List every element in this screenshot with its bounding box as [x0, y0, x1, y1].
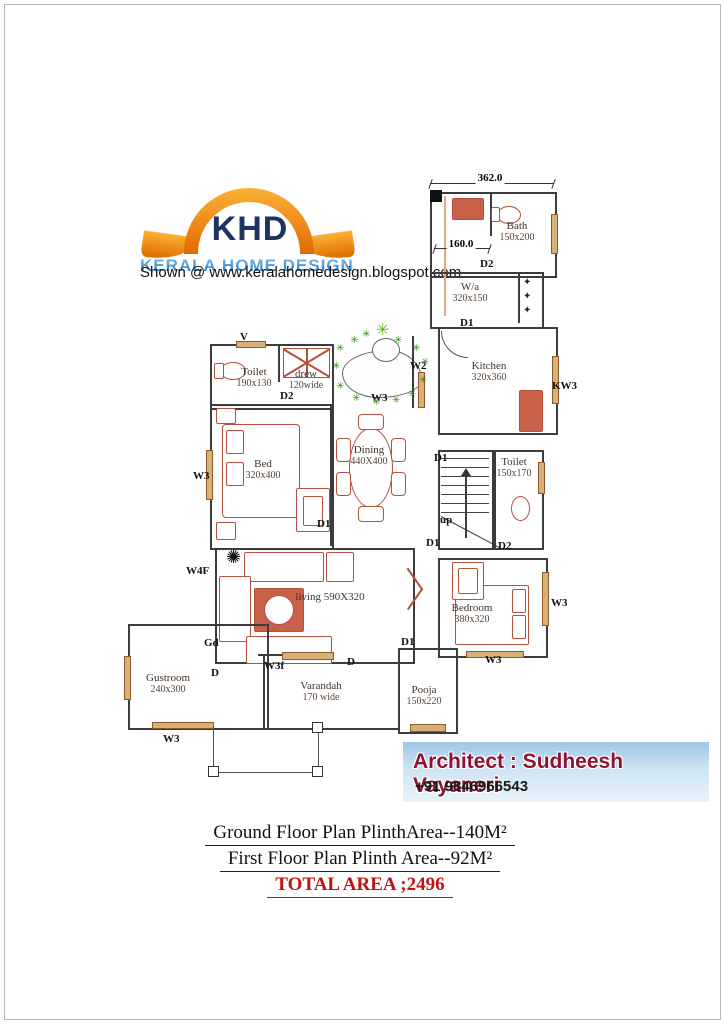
- dining-chair-2: [358, 506, 384, 522]
- dimension-top-value: 362.0: [476, 172, 505, 184]
- tag-d2: D2: [280, 390, 293, 402]
- sofa-single-icon: [326, 552, 354, 582]
- varandah-window-w3f: [282, 652, 334, 660]
- toilet-dress-divider: [278, 346, 280, 382]
- toilet-left-tank: [214, 363, 224, 379]
- wa-shelf-mark-1: ✦: [523, 278, 531, 288]
- room-label: Dining440X400: [350, 444, 387, 468]
- plant-icon: ✳: [394, 336, 402, 346]
- tag-d2: D2: [498, 540, 511, 552]
- logo-khd-text: KHD: [210, 210, 290, 249]
- tag-w4f: W4F: [186, 565, 209, 577]
- plant-icon: ✳: [408, 390, 416, 400]
- tag-d: D: [211, 667, 219, 679]
- room-label: Bed320x400: [246, 458, 281, 482]
- tag-w3: W3: [551, 597, 568, 609]
- corner-block: [430, 190, 442, 202]
- plant-icon: ✳: [421, 358, 429, 368]
- bed-pillow-2: [226, 462, 244, 486]
- plan-summary: Ground Floor Plan PlinthArea--140M² Firs…: [170, 822, 550, 900]
- pooja-window: [410, 724, 446, 732]
- toilet-right-wc-icon: [511, 496, 530, 521]
- room-label: Bedroom380x320: [452, 602, 493, 626]
- wa-shelf-mark-2: ✦: [523, 292, 531, 302]
- dining-chair-5: [391, 438, 406, 462]
- washer-icon: [452, 198, 484, 220]
- dining-chair-4: [336, 472, 351, 496]
- wa-shelf-wall: [518, 274, 520, 323]
- architect-banner: Architect : Sudheesh Vayaneri +91 984696…: [403, 742, 709, 802]
- room-label: Pooja150x220: [407, 684, 442, 708]
- tag-d2: D2: [480, 258, 493, 270]
- plant-icon: ✳: [376, 326, 389, 336]
- dimension-lobby-value: 160.0: [447, 238, 476, 250]
- tag-d: D: [347, 656, 355, 668]
- tag-gd: Gd: [204, 637, 219, 649]
- dining-chair-3: [336, 438, 351, 462]
- plant-icon: ✳: [372, 398, 380, 408]
- guest-window-bottom: [152, 722, 214, 729]
- dining-table-icon: [349, 428, 393, 508]
- room-label: living 590X320: [295, 591, 364, 603]
- tag-d1: D1: [317, 518, 330, 530]
- plant-icon: ✳: [336, 344, 344, 354]
- living-plant-icon: ✺: [226, 552, 241, 562]
- plant-icon: ✳: [362, 330, 370, 340]
- bath-window: [551, 214, 558, 254]
- total-area: TOTAL AREA ;2496: [267, 874, 452, 898]
- tag-up: up: [440, 514, 452, 526]
- room-label: Toilet150x170: [497, 456, 532, 480]
- bedroom-pillow-1: [512, 589, 526, 613]
- toilet-right-window: [538, 462, 545, 494]
- ground-floor-area: Ground Floor Plan PlinthArea--140M²: [205, 822, 514, 846]
- plant-icon: ✳: [350, 336, 358, 346]
- shown-at-url[interactable]: Shown @ www.keralahomedesign.blogspot.co…: [140, 264, 461, 281]
- porch-pillar-3: [312, 722, 323, 733]
- bedroom-dresser-inner: [458, 568, 478, 594]
- tag-d1: D1: [460, 317, 473, 329]
- center-table-top: [264, 595, 294, 625]
- wa-shelf-mark-3: ✦: [523, 306, 531, 316]
- dining-chair-6: [391, 472, 406, 496]
- room-label: Gustroom240x300: [146, 672, 190, 696]
- bedroom-window-right: [542, 572, 549, 626]
- plant-icon: ✳: [336, 382, 344, 392]
- room-label: W/a320x150: [453, 281, 488, 305]
- tag-w3: W3: [163, 733, 180, 745]
- architect-phone: +91 9846966543: [415, 778, 528, 795]
- plant-icon: ✳: [332, 362, 340, 372]
- tag-d1: D1: [434, 452, 447, 464]
- bed-sidetable-1: [216, 408, 236, 424]
- stove-icon: [519, 390, 543, 432]
- porch-pillar-1: [208, 766, 219, 777]
- porch: [213, 726, 319, 773]
- plant-icon: ✳: [352, 394, 360, 404]
- room-label: Bath150x200: [500, 220, 535, 244]
- tag-d1: D1: [401, 636, 414, 648]
- tag-w3f: W3f: [264, 660, 284, 672]
- room-label: Kitchen320x360: [472, 360, 507, 384]
- first-floor-area: First Floor Plan Plinth Area--92M²: [220, 848, 500, 872]
- porch-pillar-2: [312, 766, 323, 777]
- khd-logo: KHD KERALA HOME DESIGN: [148, 186, 428, 276]
- room-label: Toilet190x130: [237, 366, 272, 390]
- stair-arrow-line: [465, 470, 467, 538]
- bed-sidetable-2: [216, 522, 236, 540]
- plant-icon: ✳: [419, 376, 427, 386]
- dining-chair-1: [358, 414, 384, 430]
- page: KHD KERALA HOME DESIGN Shown @ www.keral…: [0, 0, 725, 1024]
- sofa-top-icon: [244, 552, 324, 582]
- guest-window-left: [124, 656, 131, 700]
- stair-arrow-head: [461, 463, 471, 476]
- bedroom-pillow-2: [512, 615, 526, 639]
- wall-lobby-bath: [430, 192, 557, 278]
- room-label: drew120wide: [289, 368, 323, 392]
- tag-w3: W3: [193, 470, 210, 482]
- tag-w3: W3: [485, 654, 502, 666]
- tag-d1: D1: [426, 537, 439, 549]
- plant-icon: ✳: [392, 396, 400, 406]
- bed-pillow-1: [226, 430, 244, 454]
- tag-kw3: KW3: [552, 380, 577, 392]
- room-label: Varandah170 wide: [300, 680, 342, 704]
- tag-v: V: [240, 331, 248, 343]
- plant-icon: ✳: [412, 344, 420, 354]
